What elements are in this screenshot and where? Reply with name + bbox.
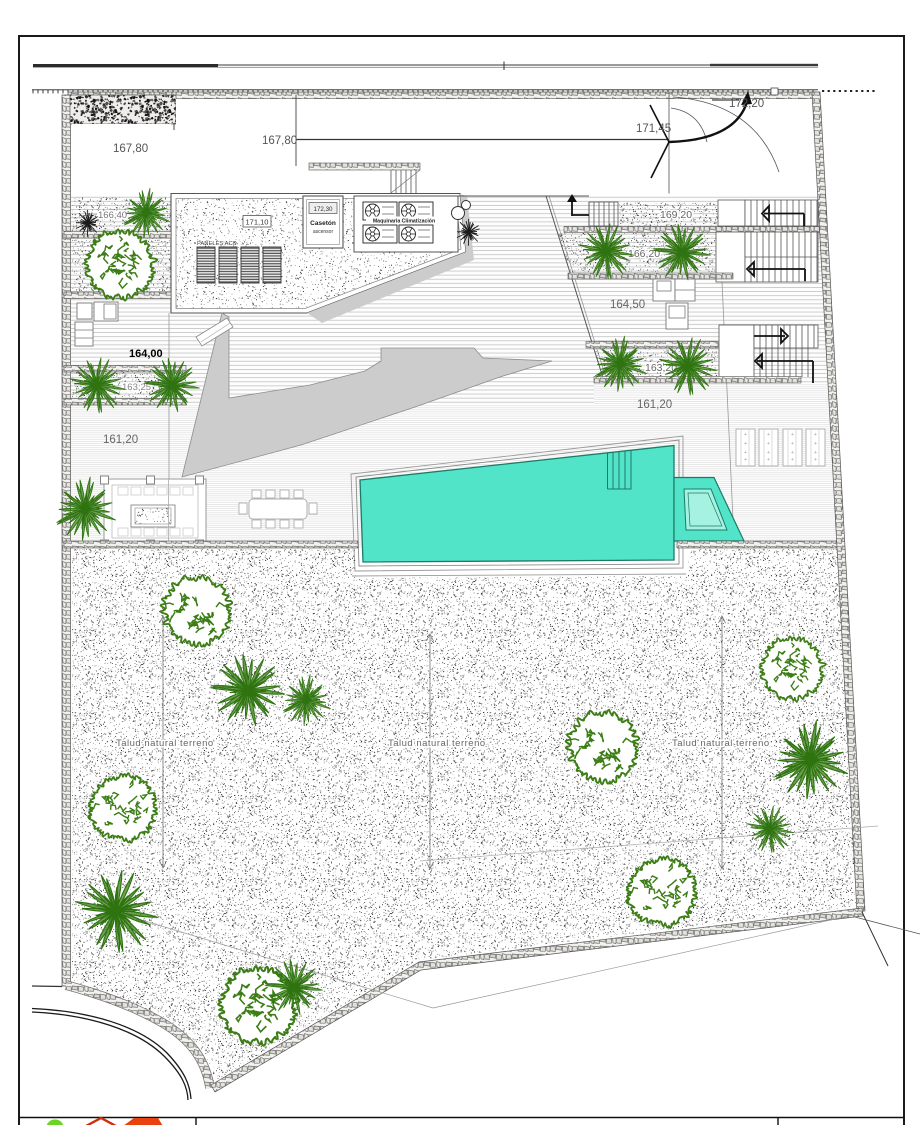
svg-text:Casetón: Casetón xyxy=(310,220,336,227)
svg-text:+: + xyxy=(814,457,817,463)
svg-text:+: + xyxy=(744,441,747,447)
svg-text:172,30: 172,30 xyxy=(314,206,333,213)
svg-text:+: + xyxy=(791,450,794,456)
svg-text:172,20: 172,20 xyxy=(729,98,764,110)
svg-text:Talud natural terreno: Talud natural terreno xyxy=(388,738,486,749)
svg-text:+: + xyxy=(767,432,770,438)
svg-text:+: + xyxy=(744,457,747,463)
svg-text:169,20: 169,20 xyxy=(660,209,692,221)
svg-text:171,45: 171,45 xyxy=(636,123,671,135)
svg-text:161,20: 161,20 xyxy=(103,434,138,446)
svg-text:+: + xyxy=(791,432,794,438)
svg-text:+: + xyxy=(744,432,747,438)
svg-text:+: + xyxy=(767,441,770,447)
svg-text:+: + xyxy=(767,457,770,463)
svg-text:PANELES ACS: PANELES ACS xyxy=(197,241,237,247)
svg-text:166,40: 166,40 xyxy=(98,210,127,221)
svg-text:+: + xyxy=(791,441,794,447)
svg-text:Talud natural terreno: Talud natural terreno xyxy=(116,738,214,749)
svg-text:+: + xyxy=(767,450,770,456)
svg-text:+: + xyxy=(791,457,794,463)
svg-text:+: + xyxy=(814,450,817,456)
svg-text:+: + xyxy=(814,432,817,438)
svg-text:Maquinaria Climatización: Maquinaria Climatización xyxy=(373,219,435,225)
svg-text:161,20: 161,20 xyxy=(637,399,672,411)
svg-text:167,80: 167,80 xyxy=(262,135,297,147)
svg-text:+: + xyxy=(814,441,817,447)
svg-text:Talud natural terreno: Talud natural terreno xyxy=(672,738,770,749)
svg-text:ascensor: ascensor xyxy=(313,229,334,235)
svg-text:164,50: 164,50 xyxy=(610,299,645,311)
svg-text:167,80: 167,80 xyxy=(113,143,148,155)
svg-text:171,10: 171,10 xyxy=(246,218,269,227)
svg-text:+: + xyxy=(744,450,747,456)
svg-text:164,00: 164,00 xyxy=(129,348,163,360)
